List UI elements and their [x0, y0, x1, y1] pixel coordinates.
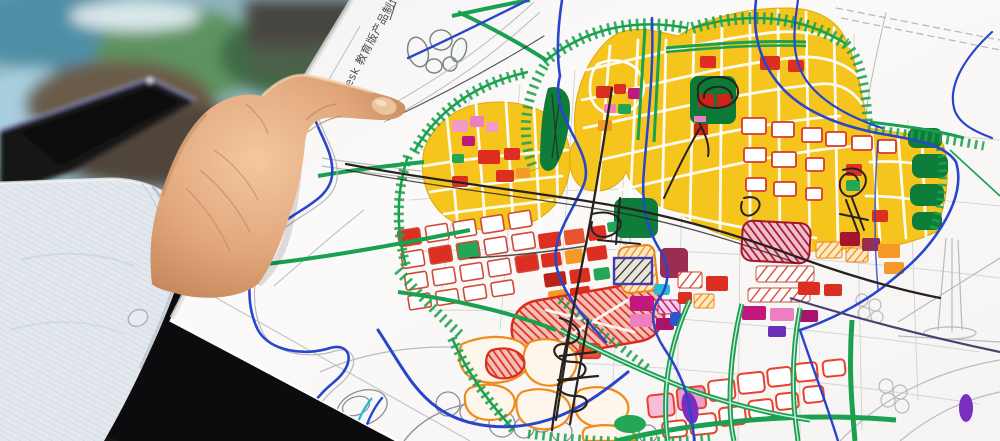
tablet-corner-glint [147, 77, 153, 83]
cbd-indigo-outline-block [614, 258, 652, 284]
green-park-blob-south [614, 415, 646, 433]
screenshot-root: desk 教育版产品制作 [0, 0, 1000, 441]
photo-canvas: desk 教育版产品制作 [0, 0, 1000, 441]
purple-block-southeast [959, 394, 973, 422]
